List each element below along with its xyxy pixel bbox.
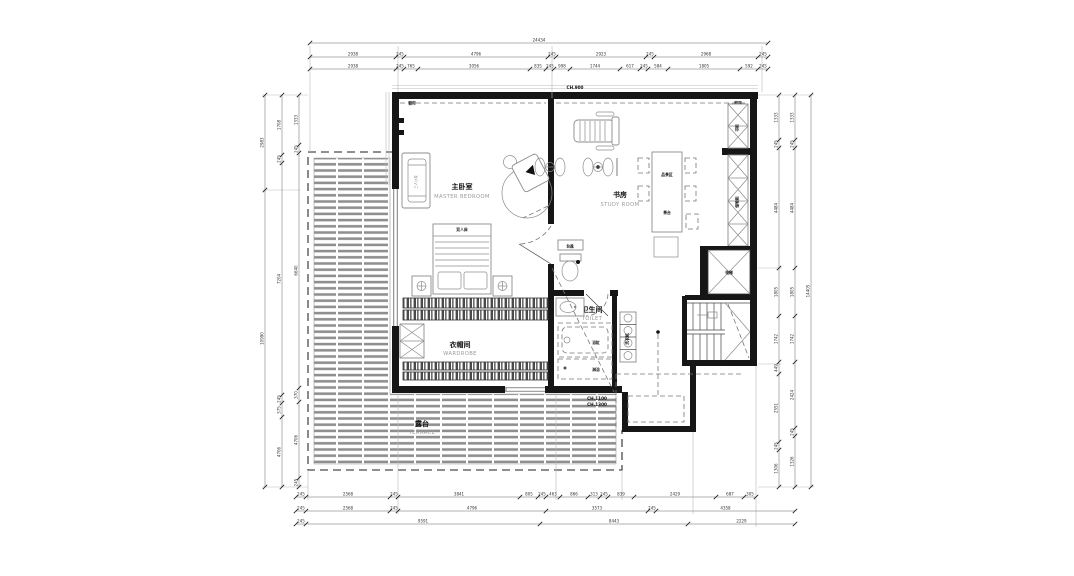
laundry-column: 洗衣机 — [620, 312, 636, 362]
clothes-rack — [403, 310, 548, 320]
dim-text: 9591 — [418, 519, 429, 524]
dim-text: 14405 — [806, 284, 811, 297]
dim-text: 866 — [570, 492, 578, 497]
dim-text: 245 — [790, 428, 795, 436]
dim-text: 245 — [640, 64, 648, 69]
dim-text: 1708 — [277, 119, 282, 130]
study-label-en: STUDY ROOM — [600, 202, 639, 208]
dim-col-right-outer: 14405 — [806, 93, 814, 489]
dim-text: 2551 — [774, 402, 779, 413]
dim-text: 1333 — [774, 112, 779, 123]
dim-text: 1805 — [790, 286, 795, 297]
basin-label: 台盆 — [566, 244, 574, 249]
dim-text: 245 — [774, 140, 779, 148]
dim-text: 4706 — [277, 446, 282, 457]
wardrobe-label-zh: 衣帽间 — [450, 340, 471, 349]
dim-text: 245 — [600, 492, 608, 497]
master-bedroom-label-en: MASTER BEDROOM — [434, 194, 490, 200]
dim-text: 3841 — [454, 492, 465, 497]
dim-text: 245 — [277, 155, 282, 163]
dim-text: 1333 — [294, 114, 299, 125]
terrace-label-en: TERRACE — [408, 430, 436, 436]
dim-text: 2568 — [343, 492, 354, 497]
elevator: 电梯 — [704, 246, 754, 298]
dim-col-left-outer: 298310990 — [260, 93, 268, 489]
dim-text: 584 — [654, 64, 662, 69]
master-bedroom-label-zh: 主卧室 — [452, 182, 473, 191]
stairs — [656, 303, 750, 396]
shower-label: 淋浴 — [592, 367, 600, 372]
dim-text: 245 — [396, 52, 404, 57]
dim-text: 8443 — [609, 519, 620, 524]
bed-label: 双人床 — [455, 227, 468, 232]
wardrobe-label-en: WARDROBE — [443, 351, 477, 357]
cabinet-upper-label: 书柜 — [735, 124, 740, 132]
dim-text: 3573 — [592, 506, 603, 511]
dim-text: 245 — [297, 492, 305, 497]
dim-text: 245 — [538, 492, 546, 497]
shower: 淋浴 — [558, 359, 612, 379]
dim-text: 1805 — [774, 286, 779, 297]
sofa-label: 三人沙发 — [413, 175, 418, 189]
dim-col-left-inner: 133324566403704706245 — [294, 93, 302, 489]
toilet-room: 卫生间 TOILET 浴缸 淋浴 — [556, 294, 612, 379]
dim-text: 7204 — [277, 273, 282, 284]
clothes-rack — [403, 298, 548, 308]
dim-text: 245 — [759, 52, 767, 57]
ceiling-height-top: CH.900 — [567, 85, 584, 90]
floor-plan-canvas: 露台 TERRACE — [0, 0, 1074, 576]
dim-text: 6640 — [294, 265, 299, 276]
study-label-zh: 书房 — [613, 190, 627, 199]
exercise-bike — [583, 158, 617, 176]
dim-text: 2568 — [343, 506, 354, 511]
clothes-rack — [403, 362, 548, 370]
bookcase-column: 书柜 储物柜 — [728, 104, 748, 246]
dim-text: 2923 — [596, 52, 607, 57]
toilet-label-zh: 卫生间 — [582, 305, 603, 314]
dim-text: 245 — [759, 64, 767, 69]
dim-text: 449 — [774, 364, 779, 372]
wardrobe: 衣帽间 WARDROBE — [400, 298, 548, 380]
dim-text: 375 — [277, 406, 282, 414]
dim-text: 4796 — [471, 52, 482, 57]
dim-text: 998 — [558, 64, 566, 69]
master-bedroom: 主卧室 MASTER BEDROOM 三人沙发 双人床 — [402, 153, 552, 296]
dim-text: 10990 — [260, 332, 265, 345]
dim-text: 2424 — [790, 389, 795, 400]
dim-row-top-3: 2938245765305683524599817446172455841805… — [308, 64, 770, 72]
dim-row-bottom-3: 245959184432229 — [294, 519, 797, 527]
dim-text: 245 — [277, 395, 282, 403]
nightstand-right — [493, 276, 512, 296]
dim-text: 2938 — [348, 64, 359, 69]
dim-text: 245 — [790, 140, 795, 148]
window-band — [392, 185, 399, 330]
dim-text: 245 — [646, 52, 654, 57]
dim-row-top-total: 24434 — [308, 38, 770, 46]
dim-text: 245 — [294, 145, 299, 153]
terrace-label-zh: 露台 — [415, 419, 429, 428]
dim-text: 2938 — [348, 52, 359, 57]
tea-table-label: 茶台 — [662, 210, 671, 215]
dim-col-left-mid: 170824572042453754706 — [277, 93, 285, 489]
dim-text: 245 — [774, 442, 779, 450]
wc-nook: 台盆 — [558, 240, 583, 281]
bed: 双人床 — [412, 224, 512, 296]
dim-text: 313 — [590, 492, 598, 497]
ceiling-height-mid2: CH.1300 — [587, 402, 607, 407]
dim-text: 4796 — [467, 506, 478, 511]
dim-text: 617 — [626, 64, 634, 69]
dim-text: 2229 — [736, 519, 747, 524]
dim-col-right-mid: 133324544841805174224242451326 — [790, 93, 798, 489]
clothes-rack — [403, 372, 548, 380]
dim-text: 245 — [546, 64, 554, 69]
floor-plan-drawing: 露台 TERRACE — [0, 0, 1074, 576]
dim-text: 4484 — [774, 202, 779, 213]
dim-text: 1326 — [790, 456, 795, 467]
dim-text: 305 — [746, 492, 754, 497]
tea-area-label: 品茶区 — [661, 172, 673, 177]
tea-table: 品茶区 茶台 — [638, 152, 698, 257]
dim-text: 245 — [396, 64, 404, 69]
dim-text: 2983 — [260, 137, 265, 148]
dim-text: 592 — [745, 64, 753, 69]
treadmill — [574, 112, 619, 150]
dim-text: 245 — [648, 506, 656, 511]
dim-text: 1742 — [790, 333, 795, 344]
study-room: 书房 STUDY ROOM 品茶区 茶台 — [535, 112, 698, 257]
dim-text: 765 — [407, 64, 415, 69]
dim-text: 245 — [390, 506, 398, 511]
corner-cabinet — [400, 324, 424, 358]
dim-text: 805 — [525, 492, 533, 497]
dim-text: 839 — [617, 492, 625, 497]
dim-text: 245 — [548, 52, 556, 57]
dim-text: 1744 — [590, 64, 601, 69]
dim-text: 4484 — [790, 202, 795, 213]
washbasin — [556, 298, 584, 316]
dim-text: 370 — [294, 391, 299, 399]
dim-text: 1742 — [774, 333, 779, 344]
dim-text: 1333 — [790, 112, 795, 123]
dim-text: 2968 — [701, 52, 712, 57]
elevator-label: 电梯 — [725, 270, 733, 275]
sofa: 三人沙发 — [402, 153, 430, 208]
cabinet-lower-label: 储物柜 — [735, 196, 740, 208]
dim-text: 245 — [294, 478, 299, 486]
dim-text: 4358 — [720, 506, 731, 511]
dim-row-bottom-2: 2452568245479635732454358 — [294, 506, 797, 514]
dim-text: 3056 — [469, 64, 480, 69]
bathtub: 浴缸 — [558, 323, 612, 357]
dim-text: 245 — [390, 492, 398, 497]
dim-text: 2429 — [670, 492, 681, 497]
dim-text: 835 — [534, 64, 542, 69]
dim-text: 24434 — [533, 38, 546, 43]
dim-text: 687 — [726, 492, 734, 497]
curtain-label-left: 窗帘 — [408, 101, 416, 106]
dim-col-right-inner: 133324544841805174244925512451306 — [774, 93, 782, 489]
nightstand-left — [412, 276, 431, 296]
washer-label: 洗衣机 — [625, 333, 630, 345]
ceiling-height-mid1: CH.1100 — [587, 396, 607, 401]
dim-text: 245 — [297, 506, 305, 511]
dim-text: 245 — [297, 519, 305, 524]
dim-text: 463 — [549, 492, 557, 497]
toilet-label-en: TOILET — [581, 316, 603, 322]
bathtub-label: 浴缸 — [592, 340, 600, 345]
dim-text: 1805 — [699, 64, 710, 69]
dim-row-bottom-1: 2452568245384180524546386631324583924296… — [294, 492, 758, 500]
dim-text: 1306 — [774, 463, 779, 474]
dim-text: 4706 — [294, 434, 299, 445]
dim-row-top-2: 2938245479624529232452968245 — [308, 52, 770, 60]
bedroom-door — [519, 226, 551, 264]
